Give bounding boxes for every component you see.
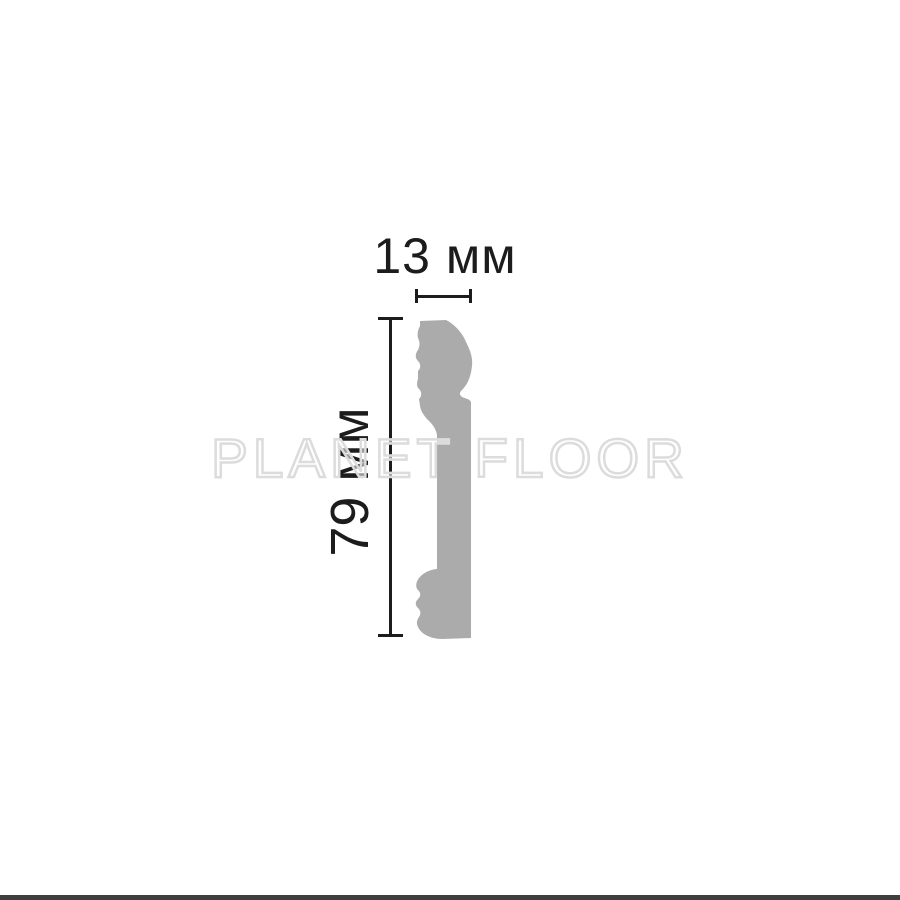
- width-dimension-label: 13 мм: [350, 229, 540, 284]
- height-dimension-tick-bottom: [378, 634, 403, 637]
- width-dimension-line: [415, 289, 472, 303]
- profile-shape: [416, 320, 472, 639]
- width-dimension-tick-right: [469, 289, 472, 303]
- height-dimension-line: [378, 317, 403, 637]
- product-diagram: 13 мм 79 мм PLANET FLOOR: [0, 0, 900, 900]
- height-dimension-label: 79 мм: [321, 392, 379, 572]
- width-dimension-rule: [415, 295, 472, 298]
- profile-cross-section: [412, 318, 474, 642]
- height-dimension-rule: [389, 317, 392, 637]
- bottom-edge-bar: [0, 895, 900, 900]
